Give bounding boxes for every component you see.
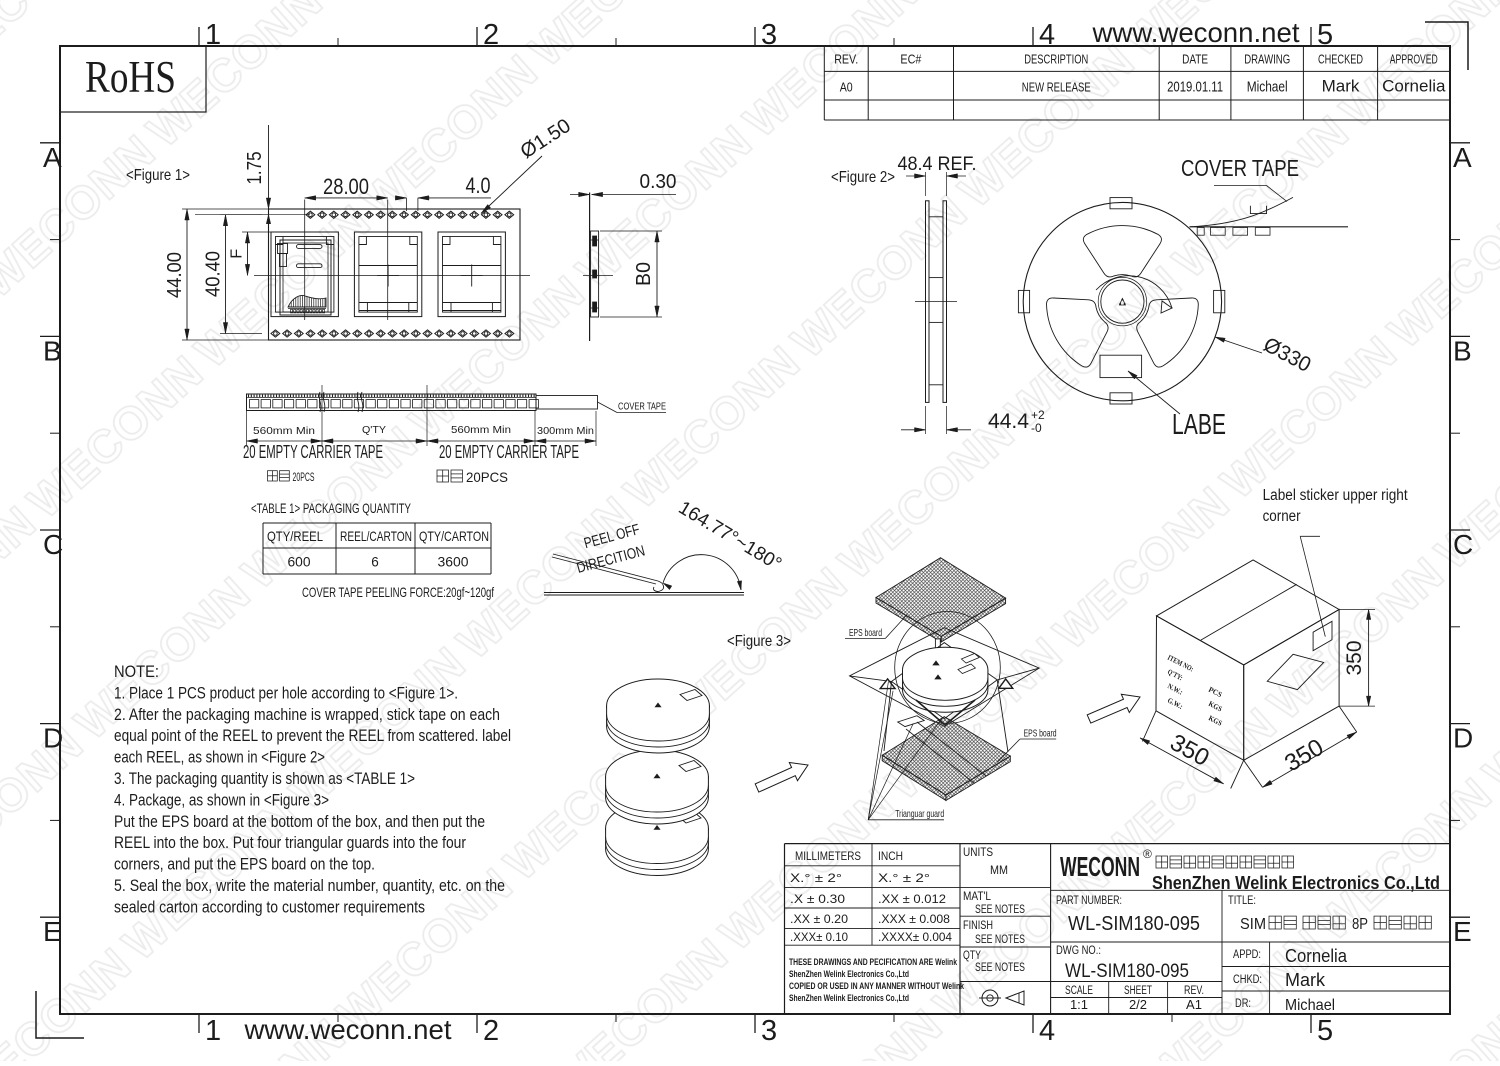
svg-text:REEL/CARTON: REEL/CARTON bbox=[340, 528, 412, 544]
svg-text:WL-SIM180-095: WL-SIM180-095 bbox=[1068, 913, 1200, 935]
svg-text:INCH: INCH bbox=[878, 849, 903, 863]
svg-text:1.75: 1.75 bbox=[244, 152, 266, 185]
svg-text:LABE: LABE bbox=[1172, 409, 1226, 441]
svg-text:NEW RELEASE: NEW RELEASE bbox=[1022, 80, 1091, 95]
svg-text:.XX ± 0.20: .XX ± 0.20 bbox=[790, 912, 848, 926]
svg-text:300mm Min: 300mm Min bbox=[537, 425, 594, 437]
svg-text:.X ± 0.30: .X ± 0.30 bbox=[790, 892, 845, 906]
svg-text:WECONN: WECONN bbox=[1060, 851, 1140, 882]
svg-text:E: E bbox=[43, 916, 62, 947]
svg-text:APPROVED: APPROVED bbox=[1390, 53, 1438, 67]
svg-text:ShenZhen Welink Electronics Co: ShenZhen Welink Electronics Co.,Ltd bbox=[789, 993, 909, 1004]
svg-text:EC#: EC# bbox=[900, 53, 921, 67]
svg-text:<Figure 2>: <Figure 2> bbox=[831, 169, 895, 186]
svg-text:E: E bbox=[1453, 916, 1472, 947]
svg-text:corners, and put the EPS board: corners, and put the EPS board on the to… bbox=[114, 856, 375, 874]
svg-text:3. The packaging quantity is s: 3. The packaging quantity is shown as <T… bbox=[114, 770, 415, 788]
svg-text:.XXX ± 0.008: .XXX ± 0.008 bbox=[878, 912, 950, 926]
svg-text:®: ® bbox=[1143, 847, 1152, 861]
svg-text:Cornelia: Cornelia bbox=[1285, 946, 1348, 966]
svg-text:Mark: Mark bbox=[1322, 77, 1360, 96]
svg-text:+2: +2 bbox=[1031, 408, 1045, 422]
svg-text:D: D bbox=[43, 723, 63, 754]
svg-text:2: 2 bbox=[483, 1015, 499, 1047]
svg-text:2. After the packaging machine: 2. After the packaging machine is wrappe… bbox=[114, 706, 500, 724]
svg-text:0.30: 0.30 bbox=[640, 171, 677, 193]
svg-text:RoHS: RoHS bbox=[85, 52, 176, 102]
svg-text:COVER TAPE PEELING FORCE:20gf~: COVER TAPE PEELING FORCE:20gf~120gf bbox=[302, 584, 494, 600]
svg-text:APPD:: APPD: bbox=[1233, 949, 1261, 961]
svg-text:8P: 8P bbox=[1352, 916, 1368, 933]
svg-text:28.00: 28.00 bbox=[323, 174, 369, 199]
svg-text:SCALE: SCALE bbox=[1065, 985, 1093, 997]
svg-text:each REEL, as shown in <Figure: each REEL, as shown in <Figure 2> bbox=[114, 749, 325, 767]
svg-text:.XX ± 0.012: .XX ± 0.012 bbox=[878, 892, 946, 906]
svg-text:<Figure 3>: <Figure 3> bbox=[727, 633, 791, 650]
svg-text:4.0: 4.0 bbox=[466, 173, 491, 198]
svg-text:QTY/REEL: QTY/REEL bbox=[267, 528, 323, 544]
svg-text:EPS board: EPS board bbox=[1024, 728, 1057, 740]
svg-text:REEL into the box. Put four tr: REEL into the box. Put four triangular g… bbox=[114, 834, 466, 852]
svg-text:Label sticker upper right: Label sticker upper right bbox=[1263, 487, 1409, 504]
svg-text:3: 3 bbox=[761, 19, 777, 51]
svg-text:CHKD:: CHKD: bbox=[1233, 974, 1262, 986]
svg-text:X.° ± 2°: X.° ± 2° bbox=[790, 871, 842, 885]
svg-text:<TABLE 1> PACKAGING QUANTITY: <TABLE 1> PACKAGING QUANTITY bbox=[251, 500, 411, 516]
svg-text:4: 4 bbox=[1039, 1015, 1055, 1047]
svg-text:6: 6 bbox=[371, 555, 379, 570]
svg-text:REV.: REV. bbox=[834, 53, 858, 67]
svg-text:350: 350 bbox=[1343, 640, 1366, 675]
svg-text:A1: A1 bbox=[1186, 997, 1202, 1012]
svg-text:B0: B0 bbox=[633, 262, 655, 286]
svg-text:EPS board: EPS board bbox=[849, 627, 882, 639]
svg-text:1: 1 bbox=[205, 1015, 221, 1047]
svg-text:B: B bbox=[43, 335, 62, 366]
svg-text:.XXXX± 0.004: .XXXX± 0.004 bbox=[878, 930, 952, 944]
svg-text:NOTE:: NOTE: bbox=[114, 663, 159, 681]
svg-text:QTY/CARTON: QTY/CARTON bbox=[419, 528, 489, 544]
svg-text:20 EMPTY CARRIER TAPE: 20 EMPTY CARRIER TAPE bbox=[439, 442, 579, 462]
svg-text:TITLE:: TITLE: bbox=[1228, 895, 1256, 907]
svg-text:Cornelia: Cornelia bbox=[1382, 77, 1446, 96]
svg-text:1: 1 bbox=[205, 19, 221, 51]
svg-text:SEE NOTES: SEE NOTES bbox=[975, 960, 1025, 974]
svg-text:D: D bbox=[1453, 723, 1473, 754]
svg-text:A0: A0 bbox=[840, 81, 853, 95]
svg-text:corner: corner bbox=[1263, 508, 1301, 525]
svg-text:UNITS: UNITS bbox=[963, 845, 993, 859]
svg-text:<Figure 1>: <Figure 1> bbox=[126, 167, 190, 184]
svg-text:sealed carton according to cus: sealed carton according to customer requ… bbox=[114, 898, 425, 916]
svg-text:THESE DRAWINGS AND PECIFICATIO: THESE DRAWINGS AND PECIFICATION ARE Weli… bbox=[789, 957, 958, 968]
svg-text:DRAWING: DRAWING bbox=[1244, 53, 1290, 67]
svg-text:CHECKED: CHECKED bbox=[1318, 53, 1363, 67]
svg-text:Michael: Michael bbox=[1285, 997, 1335, 1014]
svg-text:DWG NO.:: DWG NO.: bbox=[1056, 945, 1101, 957]
svg-text:COPIED OR USED IN ANY MANNER W: COPIED OR USED IN ANY MANNER WITHOUT Wel… bbox=[789, 981, 965, 992]
svg-text:1:1: 1:1 bbox=[1070, 997, 1088, 1012]
svg-text:F: F bbox=[229, 249, 246, 259]
svg-text:C: C bbox=[1453, 529, 1473, 560]
svg-text:2: 2 bbox=[483, 19, 499, 51]
svg-text:A: A bbox=[1453, 142, 1472, 173]
svg-text:SEE NOTES: SEE NOTES bbox=[975, 932, 1025, 946]
svg-text:Trianguar guard: Trianguar guard bbox=[895, 808, 944, 820]
svg-text:Michael: Michael bbox=[1247, 79, 1288, 96]
svg-text:PART NUMBER:: PART NUMBER: bbox=[1056, 895, 1122, 907]
svg-text:5: 5 bbox=[1317, 1015, 1333, 1047]
svg-text:Put the EPS board at the botto: Put the EPS board at the bottom of the b… bbox=[114, 813, 485, 831]
svg-text:560mm Min: 560mm Min bbox=[253, 425, 315, 437]
svg-text:C: C bbox=[43, 529, 63, 560]
svg-text:2019.01.11: 2019.01.11 bbox=[1167, 79, 1223, 96]
svg-text:560mm Min: 560mm Min bbox=[451, 424, 511, 436]
svg-text:40.40: 40.40 bbox=[203, 251, 225, 297]
svg-text:X.° ± 2°: X.° ± 2° bbox=[878, 871, 930, 885]
svg-text:.XXX± 0.10: .XXX± 0.10 bbox=[790, 930, 848, 944]
svg-text:1. Place 1 PCS product per hol: 1. Place 1 PCS product per hole accordin… bbox=[114, 684, 458, 702]
svg-text:DR:: DR: bbox=[1235, 998, 1251, 1010]
svg-text:3600: 3600 bbox=[438, 555, 469, 570]
svg-text:MAT'L: MAT'L bbox=[963, 889, 991, 903]
svg-text:SIM: SIM bbox=[1240, 916, 1266, 933]
svg-text:20PCS: 20PCS bbox=[466, 469, 508, 485]
svg-text:WL-SIM180-095: WL-SIM180-095 bbox=[1065, 961, 1189, 982]
svg-text:REV.: REV. bbox=[1184, 985, 1204, 997]
svg-text:SHEET: SHEET bbox=[1124, 985, 1152, 997]
svg-text:A: A bbox=[43, 142, 62, 173]
svg-text:Q'TY: Q'TY bbox=[362, 424, 386, 436]
svg-text:600: 600 bbox=[288, 555, 311, 570]
svg-text:www.weconn.net: www.weconn.net bbox=[244, 1014, 452, 1045]
svg-text:FINISH: FINISH bbox=[963, 918, 993, 932]
svg-text:DESCRIPTION: DESCRIPTION bbox=[1024, 53, 1088, 67]
svg-text:2/2: 2/2 bbox=[1129, 997, 1147, 1012]
svg-text:DATE: DATE bbox=[1182, 53, 1208, 67]
svg-text:ShenZhen Welink Electronics Co: ShenZhen Welink Electronics Co.,Ltd bbox=[789, 969, 909, 980]
svg-text:SEE NOTES: SEE NOTES bbox=[975, 902, 1025, 916]
svg-text:MILLIMETERS: MILLIMETERS bbox=[795, 849, 861, 863]
svg-text:4. Package, as shown in <Figur: 4. Package, as shown in <Figure 3> bbox=[114, 791, 329, 809]
svg-text:44.00: 44.00 bbox=[164, 252, 186, 298]
svg-text:5. Seal the box, write the mat: 5. Seal the box, write the material numb… bbox=[114, 877, 505, 895]
svg-text:Mark: Mark bbox=[1285, 970, 1326, 990]
svg-text:48.4 REF.: 48.4 REF. bbox=[898, 154, 977, 175]
svg-text:www.weconn.net: www.weconn.net bbox=[1092, 17, 1300, 48]
svg-text:COVER TAPE: COVER TAPE bbox=[1181, 155, 1299, 181]
svg-text:B: B bbox=[1453, 335, 1472, 366]
svg-text:3: 3 bbox=[761, 1015, 777, 1047]
svg-text:20PCS: 20PCS bbox=[293, 470, 315, 484]
svg-text:MM: MM bbox=[990, 863, 1008, 877]
svg-text:44.4: 44.4 bbox=[988, 410, 1029, 433]
svg-text:equal point of the REEL to pre: equal point of the REEL to prevent the R… bbox=[114, 727, 511, 745]
svg-text:COVER TAPE: COVER TAPE bbox=[618, 401, 666, 413]
svg-text:20 EMPTY CARRIER TAPE: 20 EMPTY CARRIER TAPE bbox=[243, 442, 383, 462]
svg-text:-0: -0 bbox=[1031, 421, 1042, 435]
